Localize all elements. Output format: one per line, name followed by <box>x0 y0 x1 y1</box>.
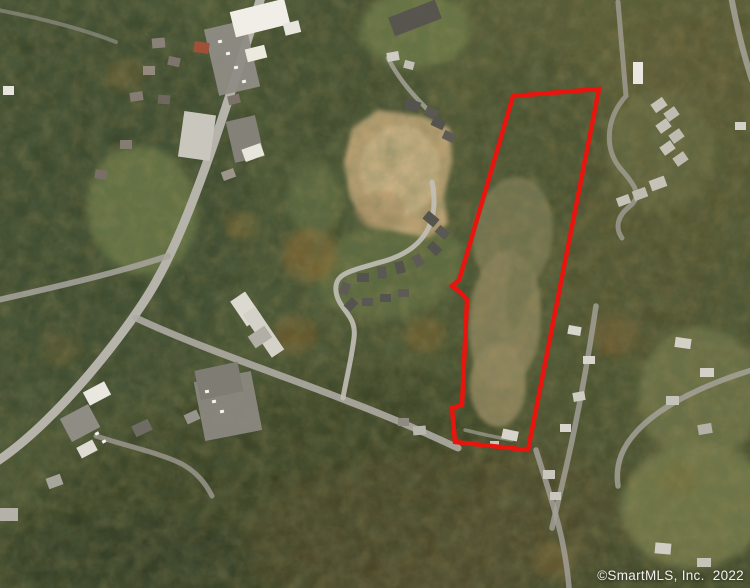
satellite-image <box>0 0 750 588</box>
photo-grain <box>0 0 750 588</box>
watermark-copyright: ©SmartMLS, Inc. 2022 <box>597 568 744 583</box>
listing-aerial-photo: ©SmartMLS, Inc. 2022 <box>0 0 750 588</box>
